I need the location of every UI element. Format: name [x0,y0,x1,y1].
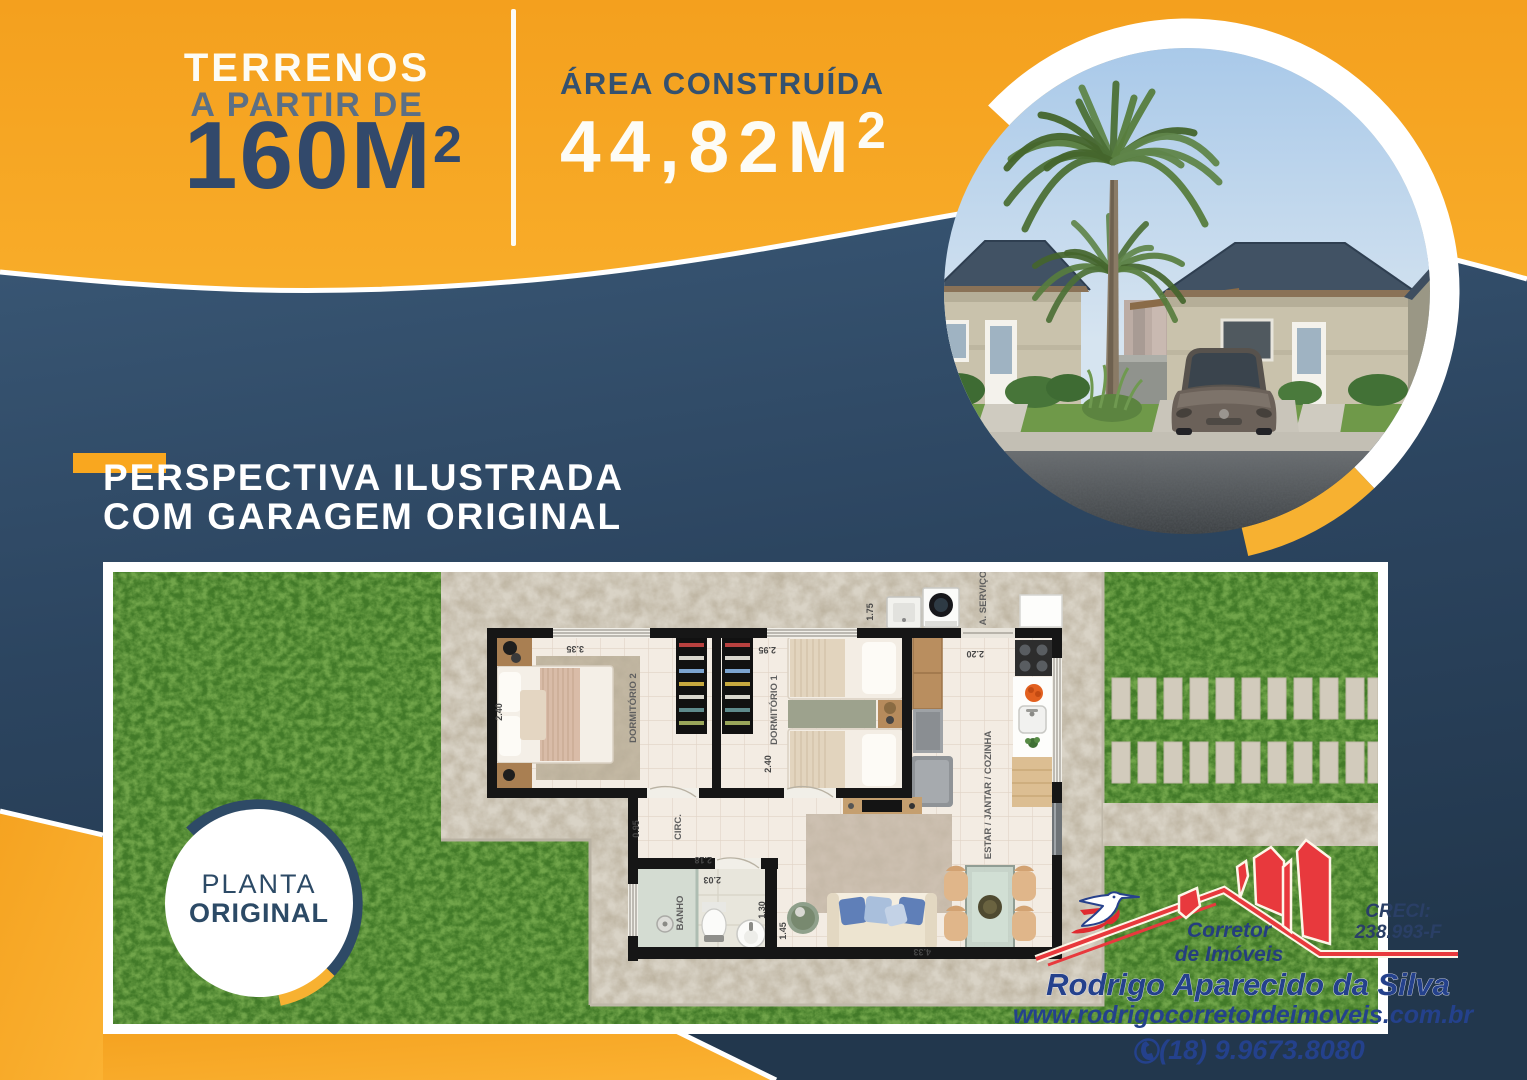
svg-text:CRECI:: CRECI: [1365,901,1430,922]
svg-text:Rodrigo Aparecido da Silva: Rodrigo Aparecido da Silva [1046,967,1450,1002]
svg-text:DORMITÓRIO 1: DORMITÓRIO 1 [768,674,780,744]
svg-text:1.45: 1.45 [778,922,788,940]
svg-text:160M: 160M [184,102,433,209]
svg-text:2.95: 2.95 [758,645,776,655]
svg-text:de Imóveis: de Imóveis [1175,943,1284,966]
svg-text:PERSPECTIVA ILUSTRADA: PERSPECTIVA ILUSTRADA [103,457,624,498]
svg-text:238.993-F: 238.993-F [1354,922,1443,943]
svg-text:1.75: 1.75 [865,603,875,621]
svg-text:2.03: 2.03 [703,875,721,885]
svg-text:1.30: 1.30 [757,901,767,919]
svg-text:2.40: 2.40 [763,755,773,773]
svg-text:www.rodrigocorretordeimoveis.c: www.rodrigocorretordeimoveis.com.br [1013,1001,1475,1029]
svg-text:TERRENOS: TERRENOS [184,46,430,90]
svg-text:ÁREA CONSTRUÍDA: ÁREA CONSTRUÍDA [560,66,884,101]
svg-text:ORIGINAL: ORIGINAL [189,898,329,928]
svg-text:2.18: 2.18 [694,855,712,865]
svg-text:2: 2 [433,116,462,174]
svg-text:2.40: 2.40 [494,703,504,721]
svg-text:ESTAR / JANTAR / COZINHA: ESTAR / JANTAR / COZINHA [983,731,994,860]
svg-text:44,82M: 44,82M [560,107,858,188]
svg-text:4.33: 4.33 [913,947,931,957]
svg-text:Corretor: Corretor [1187,919,1273,942]
svg-text:3.35: 3.35 [566,644,584,654]
svg-text:0.95: 0.95 [631,820,641,838]
svg-text:A. SERVIÇO: A. SERVIÇO [978,571,989,626]
svg-text:CIRC.: CIRC. [673,814,684,840]
svg-text:2: 2 [857,102,886,160]
svg-text:PLANTA: PLANTA [201,869,316,899]
svg-text:2.20: 2.20 [966,649,984,659]
svg-text:(18) 9.9673.8080: (18) 9.9673.8080 [1159,1035,1365,1065]
svg-text:DORMITÓRIO 2: DORMITÓRIO 2 [627,673,639,743]
svg-text:COM GARAGEM ORIGINAL: COM GARAGEM ORIGINAL [103,496,622,537]
svg-text:BANHO: BANHO [675,896,686,931]
